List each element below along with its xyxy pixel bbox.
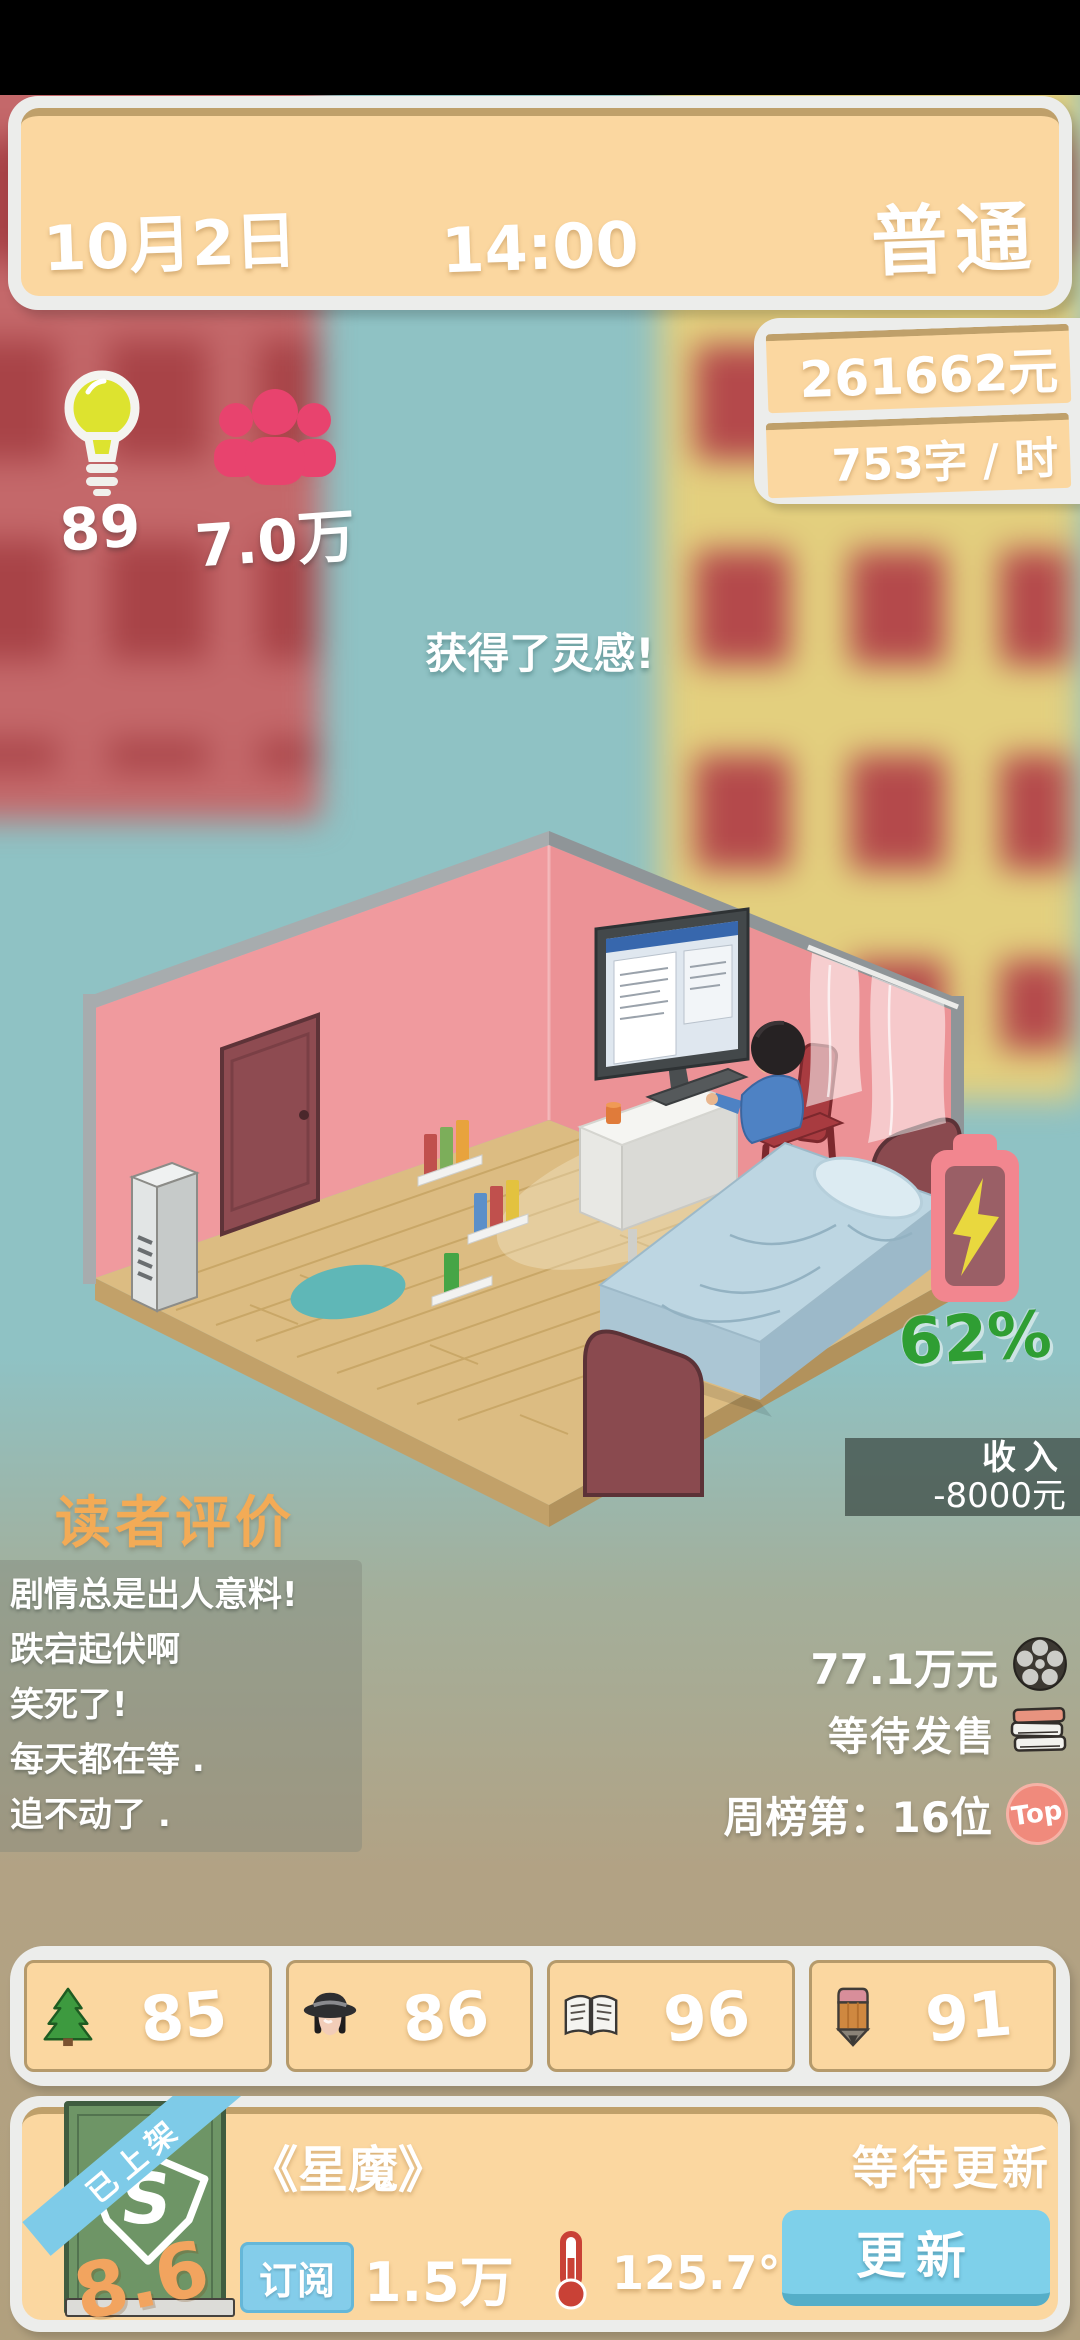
stat-knowledge: 96: [547, 1960, 795, 2072]
game-screen: 10月2日 14:00 普通 261662元 753字 / 时 89 7.0万 …: [0, 0, 1080, 2340]
heat-thermometer-icon: [550, 2230, 592, 2314]
weekly-rank: 周榜第：16位: [724, 1784, 992, 1845]
energy-percent: 62%: [888, 1298, 1062, 1381]
header-panel: 10月2日 14:00 普通: [8, 96, 1072, 310]
adaptation-value: 77.1万元: [810, 1636, 998, 1697]
hat-face-icon: [299, 1984, 361, 2048]
stat-writing: 91: [809, 1960, 1057, 2072]
header-inner: 10月2日 14:00 普通: [21, 108, 1059, 296]
door: [222, 1015, 318, 1234]
book-stack-icon: [1010, 1703, 1068, 1763]
resource-panel: 261662元 753字 / 时: [754, 318, 1080, 504]
subscriber-count: 1.5万: [364, 2238, 514, 2317]
inspiration-icon: [52, 366, 152, 500]
income-label: 收入: [982, 1439, 1066, 1477]
stat-environment: 85: [24, 1960, 272, 2072]
stats-bar: 85 86 96: [10, 1946, 1070, 2086]
tree-icon: [37, 1984, 99, 2048]
writing-speed-label: 753字 / 时: [766, 413, 1071, 499]
review-comment: 笑死了!: [10, 1678, 352, 1733]
inspiration-count: 89: [38, 490, 162, 566]
stat-appearance: 86: [286, 1960, 534, 2072]
reviews-title: 读者评价: [55, 1478, 295, 1559]
stat-knowledge-value: 96: [619, 1972, 794, 2059]
adaptation-row: 77.1万元: [810, 1634, 1068, 1698]
cup: [606, 1102, 621, 1124]
status-bar: [0, 0, 1080, 95]
current-book-card: S 已上架 8.6 《星魔》 等待更新 订阅 1.5万 125.7° 更新: [10, 2096, 1070, 2332]
fans-icon: [200, 382, 350, 498]
heat-value: 125.7°: [612, 2246, 781, 2300]
update-button[interactable]: 更新: [782, 2210, 1050, 2306]
release-status: 等待发售: [828, 1704, 996, 1762]
review-comment: 追不动了 .: [10, 1788, 352, 1843]
money-label: 261662元: [766, 324, 1072, 414]
income-value: -8000元: [933, 1477, 1066, 1515]
subscribe-label: 订阅: [240, 2242, 354, 2313]
reviews-panel: 剧情总是出人意料! 跌宕起伏啊 笑死了! 每天都在等 . 追不动了 .: [0, 1560, 362, 1852]
release-row: 等待发售: [828, 1700, 1068, 1766]
book-update-status: 等待更新: [852, 2132, 1052, 2198]
weekly-rank-row: 周榜第：16位 Top: [724, 1776, 1068, 1852]
book-title: 《星魔》: [248, 2130, 448, 2202]
review-comment: 跌宕起伏啊: [10, 1623, 352, 1678]
stat-environment-value: 85: [96, 1972, 271, 2059]
top-rank-badge[interactable]: Top: [1002, 1779, 1072, 1849]
review-comment: 剧情总是出人意料!: [10, 1568, 352, 1623]
film-reel-icon: [1012, 1636, 1068, 1696]
review-comment: 每天都在等 .: [10, 1733, 352, 1788]
income-panel: 收入 -8000元: [845, 1438, 1080, 1516]
inspiration-toast: 获得了灵感!: [0, 620, 1080, 681]
energy-battery-icon: [903, 1128, 1048, 1314]
stat-writing-value: 91: [881, 1972, 1056, 2059]
open-book-icon: [560, 1984, 622, 2048]
stat-appearance-value: 86: [358, 1972, 533, 2059]
condition-label: 普通: [869, 175, 1041, 291]
fans-count: 7.0万: [185, 488, 364, 584]
pencil-icon: [822, 1984, 884, 2048]
